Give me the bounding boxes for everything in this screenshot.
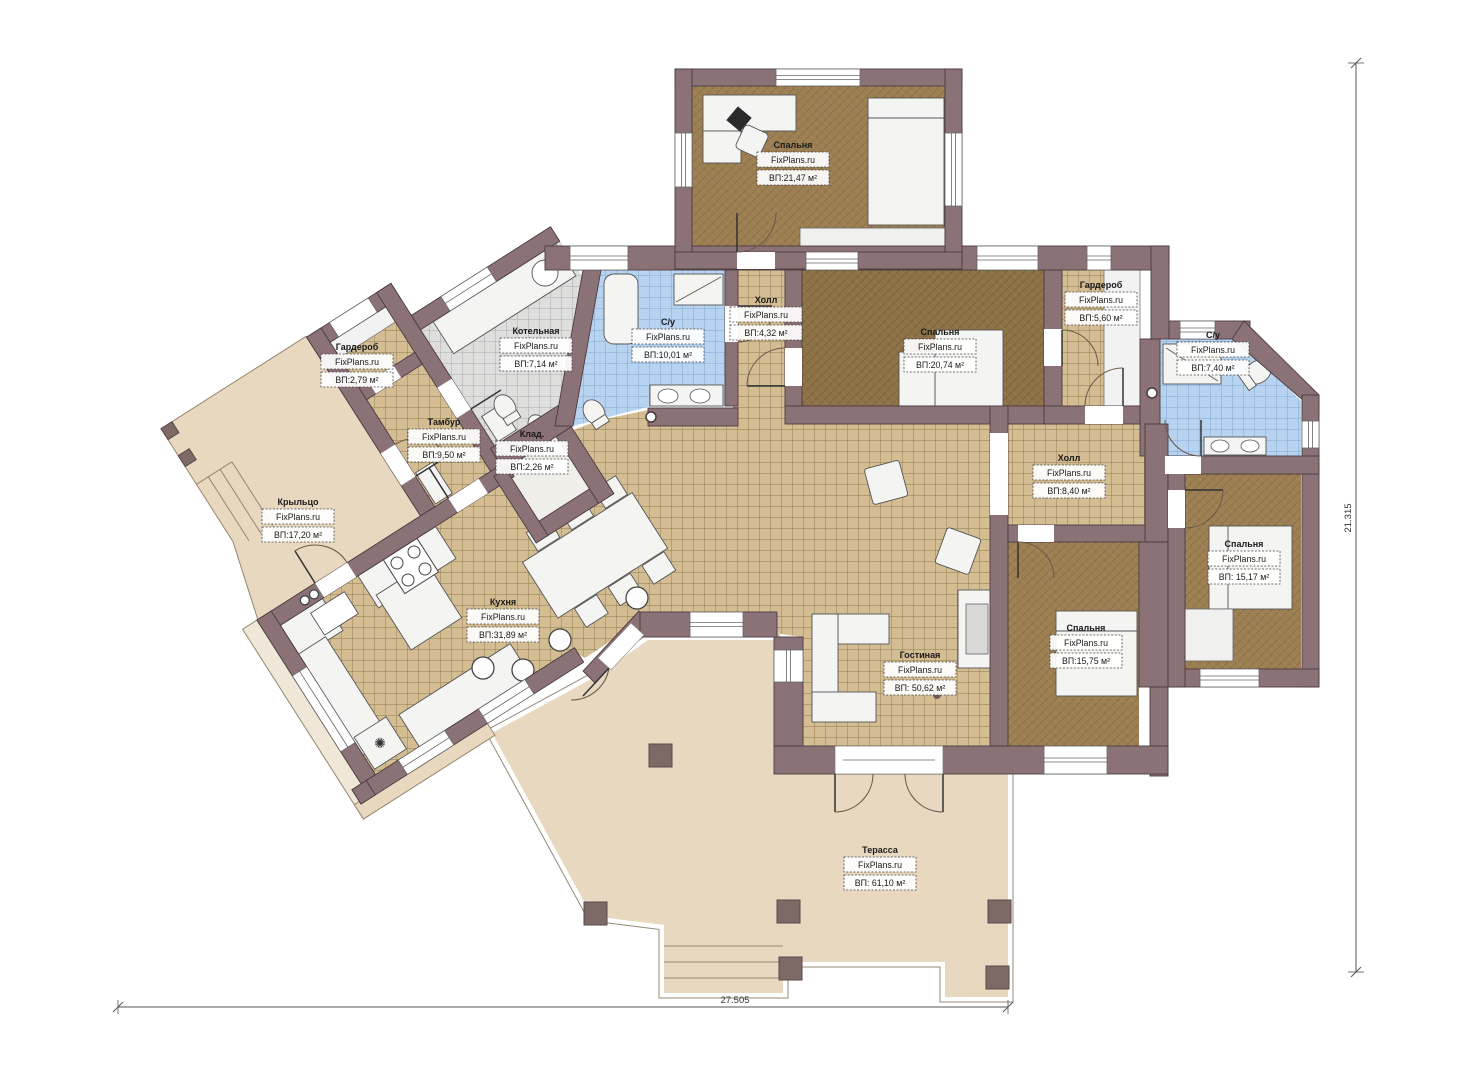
svg-text:ВП:7,14 м²: ВП:7,14 м²: [514, 359, 557, 369]
svg-text:FixPlans.ru: FixPlans.ru: [1191, 345, 1235, 355]
svg-text:Спальня: Спальня: [1067, 623, 1106, 633]
svg-text:Гардероб: Гардероб: [336, 342, 379, 352]
svg-text:Гардероб: Гардероб: [1080, 280, 1123, 290]
svg-text:Клад.: Клад.: [520, 429, 544, 439]
svg-text:ВП:9,50 м²: ВП:9,50 м²: [422, 450, 465, 460]
svg-text:Спальня: Спальня: [921, 327, 960, 337]
svg-text:Холл: Холл: [755, 295, 778, 305]
svg-text:ВП:8,40 м²: ВП:8,40 м²: [1047, 486, 1090, 496]
svg-text:ВП:5,60 м²: ВП:5,60 м²: [1079, 313, 1122, 323]
svg-text:ВП:4,32 м²: ВП:4,32 м²: [744, 328, 787, 338]
svg-text:FixPlans.ru: FixPlans.ru: [276, 512, 320, 522]
svg-text:Спальня: Спальня: [1225, 539, 1264, 549]
svg-text:С/у: С/у: [661, 317, 675, 327]
svg-text:FixPlans.ru: FixPlans.ru: [510, 444, 554, 454]
svg-text:21.315: 21.315: [1343, 503, 1354, 532]
svg-text:Котельная: Котельная: [512, 326, 559, 336]
svg-text:ВП:21,47 м²: ВП:21,47 м²: [769, 173, 817, 183]
svg-text:Гостиная: Гостиная: [900, 650, 941, 660]
svg-text:ВП: 50,62 м²: ВП: 50,62 м²: [895, 683, 946, 693]
svg-text:Холл: Холл: [1058, 453, 1081, 463]
svg-text:ВП: 15,17 м²: ВП: 15,17 м²: [1219, 572, 1270, 582]
svg-text:ВП:15,75 м²: ВП:15,75 м²: [1062, 656, 1110, 666]
svg-text:ВП: 61,10 м²: ВП: 61,10 м²: [855, 878, 906, 888]
svg-text:FixPlans.ru: FixPlans.ru: [335, 357, 379, 367]
svg-text:FixPlans.ru: FixPlans.ru: [898, 665, 942, 675]
svg-text:✺: ✺: [374, 735, 386, 751]
svg-text:ВП:17,20 м²: ВП:17,20 м²: [274, 530, 322, 540]
svg-text:Спальня: Спальня: [774, 140, 813, 150]
svg-text:Тамбур: Тамбур: [428, 417, 461, 427]
svg-text:Крыльцо: Крыльцо: [278, 497, 319, 507]
svg-text:27.505: 27.505: [720, 995, 749, 1006]
svg-text:FixPlans.ru: FixPlans.ru: [918, 342, 962, 352]
svg-text:ВП:20,74 м²: ВП:20,74 м²: [916, 360, 964, 370]
svg-text:FixPlans.ru: FixPlans.ru: [646, 332, 690, 342]
svg-text:FixPlans.ru: FixPlans.ru: [1222, 554, 1266, 564]
svg-text:ВП:31,89 м²: ВП:31,89 м²: [479, 630, 527, 640]
svg-text:FixPlans.ru: FixPlans.ru: [514, 341, 558, 351]
svg-text:ВП:10,01 м²: ВП:10,01 м²: [644, 350, 692, 360]
svg-text:С/у: С/у: [1206, 330, 1220, 340]
svg-text:Кухня: Кухня: [490, 597, 516, 607]
svg-text:FixPlans.ru: FixPlans.ru: [1064, 638, 1108, 648]
svg-text:ВП:7,40 м²: ВП:7,40 м²: [1191, 363, 1234, 373]
svg-text:FixPlans.ru: FixPlans.ru: [744, 310, 788, 320]
svg-text:FixPlans.ru: FixPlans.ru: [422, 432, 466, 442]
svg-text:Терасса: Терасса: [862, 845, 899, 855]
svg-text:FixPlans.ru: FixPlans.ru: [481, 612, 525, 622]
svg-text:ВП:2,79 м²: ВП:2,79 м²: [335, 375, 378, 385]
svg-text:FixPlans.ru: FixPlans.ru: [858, 860, 902, 870]
svg-text:FixPlans.ru: FixPlans.ru: [771, 155, 815, 165]
svg-text:ВП:2,26 м²: ВП:2,26 м²: [510, 462, 553, 472]
svg-text:FixPlans.ru: FixPlans.ru: [1047, 468, 1091, 478]
svg-text:FixPlans.ru: FixPlans.ru: [1079, 295, 1123, 305]
